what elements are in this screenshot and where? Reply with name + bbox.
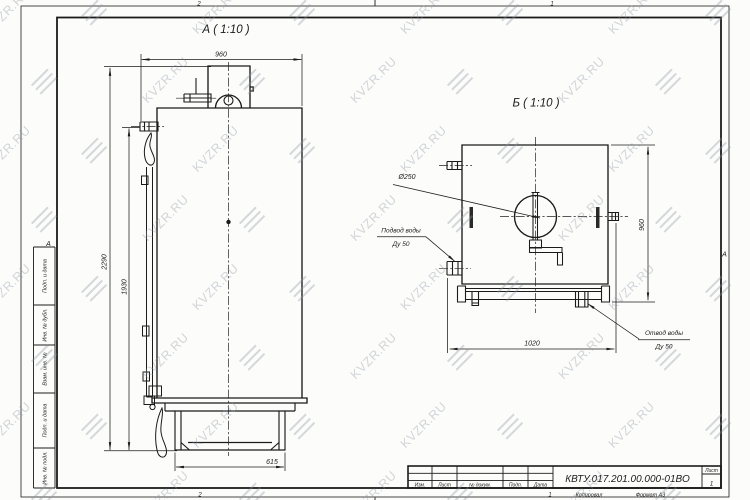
outer-border [21,6,729,497]
view-a-centerlines [131,62,229,456]
margin-cell-label: Инв. № дубл. [43,308,49,341]
format-label: Формат А3 [636,493,666,499]
view-a: А ( 1:10 ) 960 2290 1930 615 [102,24,308,471]
zone-row-label: А [45,241,51,248]
base-pedestal [165,403,295,450]
latch-knob [150,404,155,409]
view-a-contours [140,66,307,457]
sheet-frame [21,0,729,500]
drawing-sheet: 2 1 2 1 А А Подп. и дата Инв. № дубл. Вз… [0,0,750,500]
right-hinge-bar [596,207,600,228]
view-b-title: Б ( 1:10 ) [512,98,559,110]
outlet-leader [588,304,640,340]
base-frame [458,286,610,307]
rear-panel [462,145,608,284]
dim-text-960b: 960 [639,219,646,231]
extension-lines [104,54,302,471]
boiler-body [152,108,307,403]
zone-label: 1 [548,493,551,499]
inlet-label-line1: Подвод воды [381,227,421,235]
view-b-dimensions [377,145,690,353]
inlet-leader [426,237,455,262]
dim-text-2290: 2290 [102,254,109,271]
zone-label: 2 [197,493,202,499]
dim-text-1930: 1930 [122,279,129,295]
view-a-dimensions [104,54,302,471]
outlet-label-line1: Отвод воды [645,329,683,337]
diameter-leader [393,185,540,219]
margin-cell-label: Подп. и дата [43,404,49,438]
left-hinge-bar [470,207,474,228]
hinge-bolts [142,176,150,381]
flue-box [208,66,253,108]
copied-label: Копировал [576,493,603,499]
zone-label: 1 [550,2,553,8]
hinge-strip [147,167,153,397]
dim-text-1020: 1020 [524,341,540,348]
title-col-label: Изм. [415,483,426,489]
lower-door-handle [156,408,167,457]
outlet-label-line2: Ду 50 [655,344,673,351]
margin-cell-label: Инв. № подл. [43,451,49,484]
dim-text-960: 960 [215,52,227,59]
margin-cell-label: Взам. инв. № [43,352,49,386]
margin-cell-label: Подп. и дата [43,259,49,293]
title-col-label: Дата [533,483,547,489]
drawing-designation: КВТУ.017.201.00.000-01ВО [565,474,690,485]
view-a-title: А ( 1:10 ) [201,24,249,36]
inlet-label-line2: Ду 50 [392,241,410,248]
zone-label: 2 [196,2,201,8]
upper-door-handle [144,133,154,165]
title-col-label: № докум. [469,483,491,489]
extension-lines-b [448,145,656,353]
dim-text-615: 615 [266,459,278,466]
sheet-cell-label: Лист [704,468,718,474]
drawing-svg: 2 1 2 1 А А Подп. и дата Инв. № дубл. Вз… [0,0,750,500]
view-a-center-dot [226,220,230,224]
sheet-number: 1 [710,481,714,488]
title-col-label: Лист [437,483,451,489]
zone-row-label: А [721,252,727,259]
damper-crank [530,193,563,266]
dim-text-diameter: Ø250 [397,174,415,181]
title-col-label: Подп. [509,483,522,489]
view-b: Б ( 1:10 ) Ø250 960 1020 Подвод воды Ду … [377,98,690,354]
